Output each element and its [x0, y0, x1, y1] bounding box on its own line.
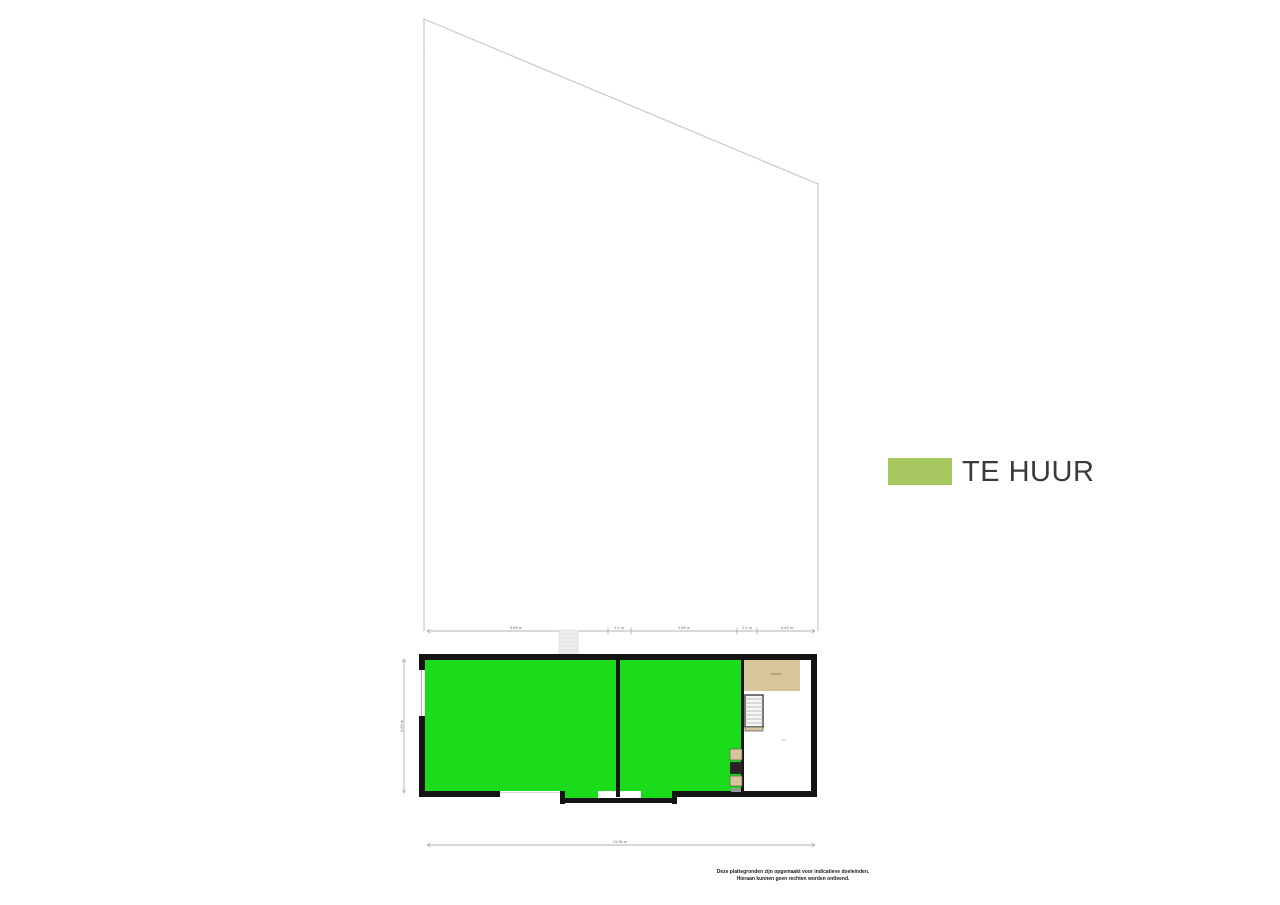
- height-label: 6,96 m: [400, 720, 404, 732]
- floorplan-page: 9,68 m 1,1 m 2,98 m 1,1 m 4,63 m 19,96 m…: [0, 0, 1280, 905]
- dimension-label: 4,63 m: [781, 626, 793, 630]
- sanitary-fixtures: [730, 749, 742, 792]
- toilet-icon: [730, 762, 742, 774]
- door-opening-left: [565, 791, 598, 798]
- dimension-label: 2,98 m: [678, 626, 690, 630]
- sink-icon: [730, 749, 742, 760]
- unit-right-area: [620, 660, 741, 791]
- dimension-label: 1,1 m: [614, 626, 624, 630]
- exterior-stairs-icon: [559, 630, 578, 654]
- dimension-label: 1,1 m: [742, 626, 752, 630]
- total-width-label: 19,96 m: [613, 840, 627, 844]
- door-opening-right: [641, 791, 672, 798]
- plot-boundary-outline: [424, 19, 818, 631]
- entree-label: entree: [771, 672, 781, 676]
- disclaimer-text: Deze plattegronden zijn opgemaakt voor i…: [643, 869, 943, 882]
- legend-swatch: [888, 458, 952, 485]
- sink-icon: [730, 776, 742, 786]
- legend-label: TE HUUR: [962, 456, 1094, 489]
- fixture-icon: [731, 788, 741, 792]
- hall-label: wc: [782, 739, 786, 742]
- disclaimer-line-2: Hieraan kunnen geen rechten worden ontle…: [643, 876, 943, 883]
- floorplan-drawing: [0, 0, 1280, 905]
- unit-left-area: [425, 660, 616, 791]
- dimension-label: 9,68 m: [510, 626, 522, 630]
- stairs-icon: [745, 695, 763, 731]
